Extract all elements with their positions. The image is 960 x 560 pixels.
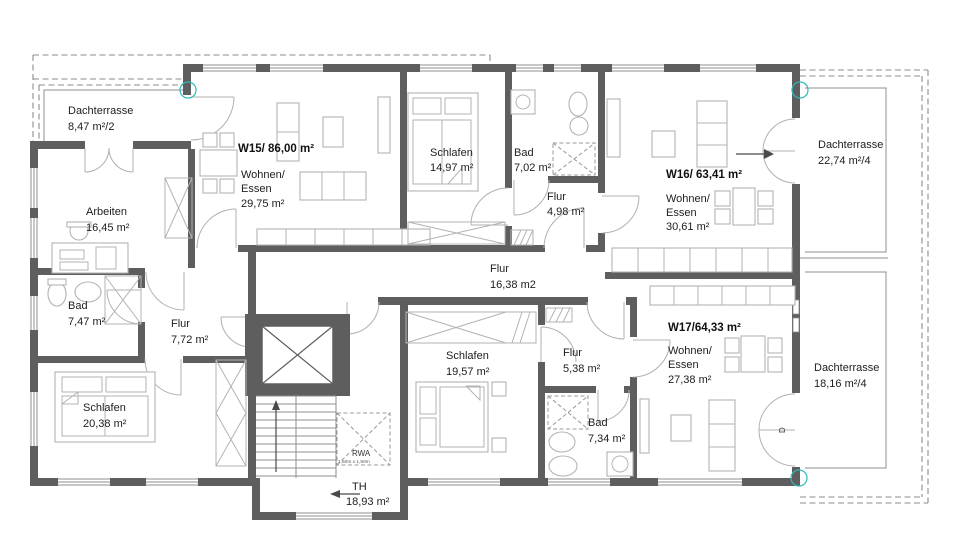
label-flur-w15-area: 7,72 m² [171,334,209,346]
label-bad-w15-area: 7,47 m² [68,316,106,328]
label-w15-area: 29,75 m² [241,198,285,210]
label-bad-w17-name: Bad [588,417,608,429]
label-w16-wohnen: Wohnen/ [666,193,711,205]
label-rwa: RWA [352,449,371,458]
label-w16-title: W16/ 63,41 m² [666,169,742,181]
label-flur-shared-name: Flur [490,263,509,275]
window [420,64,472,72]
floor-plan: Dachterrasse 8,47 m²/2 W15/ 86,00 m² Woh… [0,0,960,560]
window [30,296,38,330]
label-dachterrasse-ne-name: Dachterrasse [818,139,883,151]
window [296,512,372,520]
window [516,64,543,72]
label-w15-title: W15/ 86,00 m² [238,143,314,155]
label-flur-w16-area: 4,98 m² [547,206,585,218]
label-schlafen-w16-name: Schlafen [430,147,473,159]
label-th-area: 18,93 m² [346,496,390,508]
label-dachterrasse-nw-name: Dachterrasse [68,105,133,117]
label-bad-w15-name: Bad [68,300,88,312]
label-w17-wohnen: Wohnen/ [668,345,713,357]
label-bad-w16-name: Bad [514,147,534,159]
label-door-marker: D [778,427,787,433]
label-arbeiten-area: 16,45 m² [86,222,130,234]
label-schlafen-w15-area: 20,38 m² [83,418,127,430]
window [58,478,110,486]
label-schlafen-w17-area: 19,57 m² [446,366,490,378]
label-w15-wohnen: Wohnen/ [241,169,286,181]
wall-shaft [793,318,799,332]
label-bad-w16-area: 7,02 m² [514,162,552,174]
window [30,168,38,208]
label-schlafen-w17-name: Schlafen [446,350,489,362]
label-flur-shared-area: 16,38 m2 [490,279,536,291]
window [203,64,256,72]
label-w17-area: 27,38 m² [668,374,712,386]
window [700,64,756,72]
window [270,64,323,72]
label-flur-w15-name: Flur [171,318,190,330]
label-w17-title: W17/64,33 m² [668,322,741,334]
elevator [245,314,350,396]
label-dachterrasse-ne-area: 22,74 m²/4 [818,155,871,167]
window [30,392,38,446]
label-rwa-size: 1,50m x 1,50m [338,459,370,465]
label-flur-w17-name: Flur [563,347,582,359]
label-schlafen-w16-area: 14,97 m² [430,162,474,174]
window [30,218,38,258]
label-w16-area: 30,61 m² [666,221,710,233]
label-arbeiten-name: Arbeiten [86,206,127,218]
label-dachterrasse-nw-area: 8,47 m²/2 [68,121,114,133]
label-w16-essen: Essen [666,207,697,219]
label-dachterrasse-se-area: 18,16 m²/4 [814,378,867,390]
window [554,64,581,72]
window [658,478,742,486]
label-bad-w17-area: 7,34 m² [588,433,626,445]
window [146,478,198,486]
label-schlafen-w15-name: Schlafen [83,402,126,414]
window [548,478,610,486]
label-dachterrasse-se-name: Dachterrasse [814,362,879,374]
label-flur-w17-area: 5,38 m² [563,363,601,375]
label-w15-essen: Essen [241,183,272,195]
window [612,64,664,72]
label-flur-w16-name: Flur [547,191,566,203]
label-w17-essen: Essen [668,359,699,371]
window [428,478,500,486]
label-th-name: TH [352,481,367,493]
